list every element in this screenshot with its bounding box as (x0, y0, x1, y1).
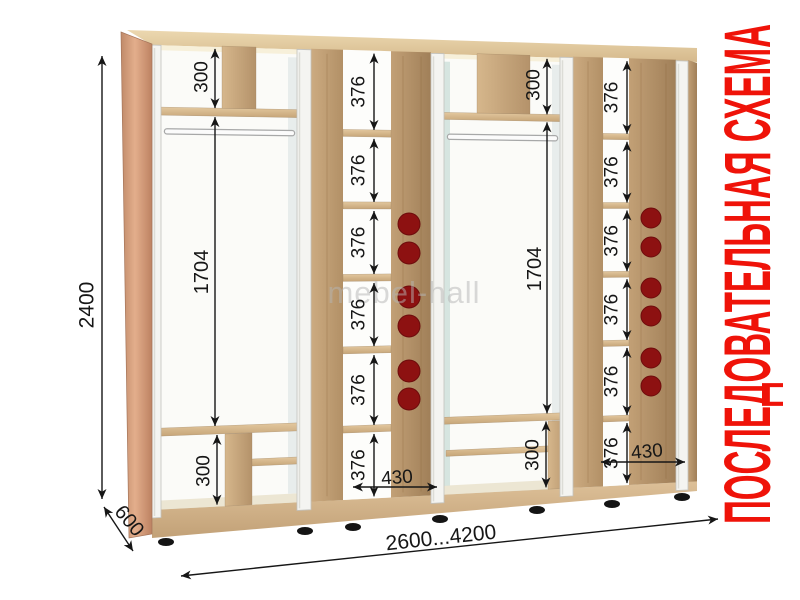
knob-dot (641, 237, 661, 257)
dimension-label: 300 (192, 61, 213, 93)
knob-dot (398, 242, 420, 264)
dimension-label: 300 (194, 455, 215, 487)
dimension-label: 2400 (76, 282, 99, 329)
knob-dot (641, 208, 661, 228)
door-wheel-foot (345, 523, 361, 531)
shelf (603, 133, 629, 139)
left-side-panel (121, 32, 152, 538)
dimension-label: 376 (349, 155, 370, 187)
right-outer-edge (688, 60, 697, 491)
dimension-label: 300 (524, 69, 545, 101)
shelf (343, 129, 391, 137)
door-wheel-foot (604, 500, 620, 508)
top-divider (222, 46, 256, 109)
wardrobe-scheme-drawing: mebel-hall 24006002600...420030017043003… (0, 0, 800, 600)
wardrobe-scheme-canvas: mebel-hall 24006002600...420030017043003… (0, 0, 800, 600)
dimension-label: 430 (380, 466, 413, 489)
knob-dot (641, 376, 661, 396)
dimension-label: 1704 (191, 250, 213, 295)
knob-dot (641, 348, 661, 368)
dimension-label: 376 (349, 449, 370, 481)
bottom-divider (225, 433, 252, 506)
door-frame-profile (152, 45, 161, 518)
dimension-label: 376 (602, 366, 623, 398)
knob-dot (398, 388, 420, 410)
shelf-column-right-wall (629, 58, 676, 485)
dimension-label: 376 (602, 294, 623, 326)
knob-dot (398, 360, 420, 382)
top-divider (477, 54, 530, 114)
dimension-label: 376 (349, 299, 370, 331)
dimension-label: 2600...4200 (385, 521, 498, 556)
door-wheel-foot (674, 493, 690, 501)
door-wheel-foot (297, 527, 313, 535)
dimension-label: 376 (602, 437, 623, 469)
hanging-rod (167, 131, 292, 133)
knob-dot (641, 278, 661, 298)
shelf (343, 424, 391, 433)
shelf (343, 202, 391, 209)
shelf (603, 271, 629, 277)
dimension-label: 376 (602, 82, 623, 114)
knob-dot (641, 306, 661, 326)
door-wheel-foot (158, 538, 174, 546)
door-wheel-foot (529, 506, 545, 514)
shelf (603, 340, 629, 347)
door-wheel-foot (432, 515, 448, 523)
shelf (603, 203, 629, 209)
dimension-label: 376 (602, 225, 623, 257)
knob-dot (398, 315, 420, 337)
dimension-label: 376 (349, 76, 370, 108)
dimension-label: 1704 (524, 247, 546, 292)
hanging-rod (450, 137, 555, 139)
dimension-label: 300 (523, 439, 544, 471)
shelf (603, 415, 629, 422)
dimension-label: 376 (602, 156, 623, 188)
shelf (343, 346, 391, 354)
dimension-label: 376 (349, 227, 370, 259)
dimension-label: 430 (630, 440, 663, 464)
knob-dot (398, 213, 420, 235)
dimension-label: 376 (349, 374, 370, 406)
side-title: ПОСЛЕДОВАТЕЛЬНАЯ СХЕМА (710, 24, 784, 524)
